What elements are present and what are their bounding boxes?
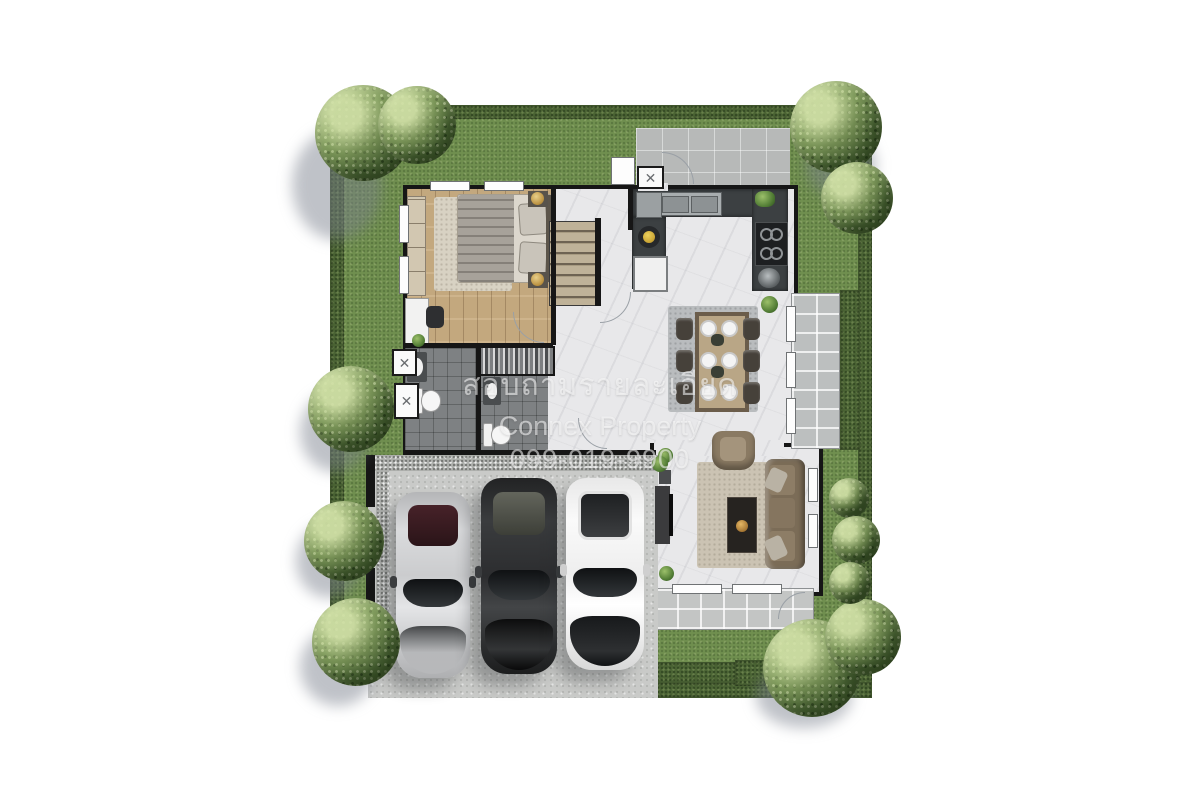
shrub-right-3 (829, 562, 871, 604)
ac-x-glyph: ✕ (401, 394, 413, 408)
dining-plant (761, 296, 778, 313)
black-car (481, 478, 557, 674)
pillow-top (518, 202, 548, 236)
white-car-roof-glass (578, 491, 631, 539)
black-car-windshield (488, 570, 550, 599)
window-dining-patio-1 (786, 306, 796, 342)
silver-car-hood (400, 626, 467, 674)
black-car-mirror-left (475, 566, 482, 578)
window-dining-patio-3 (786, 398, 796, 434)
sink-basin-right (691, 196, 718, 213)
burner (770, 228, 783, 241)
dining-chair (676, 318, 693, 340)
window-bedroom-left-2 (399, 256, 409, 294)
tv-screen (669, 494, 673, 536)
silver-car-windshield (403, 579, 464, 607)
bed (457, 194, 552, 283)
living-plant-bottom (659, 566, 674, 581)
kitchen-plant (755, 191, 775, 207)
window-living-right-2 (808, 514, 818, 548)
black-car-hood (485, 619, 553, 670)
fruit-bowl (638, 226, 660, 248)
window-bedroom-top-2 (484, 181, 524, 191)
wardrobe (407, 196, 426, 296)
silver-car (396, 492, 470, 678)
tree-left-lower (304, 501, 384, 581)
sofa (765, 459, 805, 569)
watermark-line-phone: 099-019-9900 (420, 444, 780, 475)
wall-bedroom-hall (551, 185, 556, 345)
white-car-hood (570, 616, 640, 666)
black-car-body (481, 478, 557, 674)
burner (770, 247, 783, 260)
silver-car-body (396, 492, 470, 678)
sliding-door-terrace-1 (672, 584, 722, 594)
window-living-right-1 (808, 468, 818, 502)
window-bedroom-left-1 (399, 205, 409, 243)
entry-doormat (611, 157, 635, 185)
tree-left-middle (308, 366, 394, 452)
silver-car-mirror-right (469, 576, 476, 588)
dining-chair (743, 318, 760, 340)
tree-right-upper (821, 162, 893, 234)
watermark-line-brand: Connex Property (420, 411, 780, 442)
white-car-body (566, 478, 644, 670)
tree-bottom-right-small (825, 599, 901, 675)
shrub-right-2 (832, 516, 880, 564)
floor-plan-rendering: ✕ ✕ ✕ สอบถามรายละเอียด Connex Property 0… (0, 0, 1200, 800)
prep-sink-round (758, 268, 780, 288)
lamp-top (531, 192, 544, 205)
tree-bottom-left (312, 598, 400, 686)
lamp-bottom (531, 273, 544, 286)
side-patio (791, 293, 840, 449)
sofa-cushion (769, 498, 795, 528)
tree-top-right (790, 81, 882, 173)
coffee-table (727, 497, 757, 553)
white-car-windshield (573, 568, 637, 597)
garage-wall-left-upper (366, 455, 375, 507)
ac-x-glyph: ✕ (399, 356, 411, 370)
watermark: สอบถามรายละเอียด Connex Property 099-019… (420, 362, 780, 475)
white-car-mirror-right (643, 564, 650, 576)
table-centerpiece (711, 334, 724, 346)
hedge-patio-side (840, 290, 860, 450)
hedge-row-bottom (656, 662, 736, 684)
pillow-bottom (518, 241, 548, 275)
fruit (643, 231, 655, 243)
stove (755, 222, 788, 266)
ac-unit-left-1: ✕ (392, 349, 417, 376)
sink-basin-left (662, 196, 689, 213)
ac-unit-entry: ✕ (637, 166, 664, 189)
wall-kitchen-hall (628, 185, 633, 230)
sliding-door-terrace-2 (732, 584, 782, 594)
desk-chair (426, 306, 444, 328)
white-car-mirror-left (560, 564, 567, 576)
kitchen-appliance (636, 192, 662, 218)
plate (721, 320, 738, 337)
tv-console (655, 486, 670, 544)
window-dining-patio-2 (786, 352, 796, 388)
shrub-right-1 (829, 478, 869, 518)
white-car (566, 478, 644, 670)
coffee-table-decor (736, 520, 748, 532)
watermark-line-thai: สอบถามรายละเอียด (420, 362, 780, 409)
staircase (549, 221, 597, 306)
refrigerator (633, 256, 668, 292)
ac-x-glyph: ✕ (645, 171, 657, 185)
ac-unit-left-2: ✕ (394, 383, 419, 419)
black-car-sunroof (493, 492, 545, 535)
bath-corner-plant (412, 334, 425, 347)
kitchen-sink (658, 192, 722, 216)
window-bedroom-top-1 (430, 181, 470, 191)
silver-car-mirror-left (390, 576, 397, 588)
bed-blanket (458, 195, 514, 282)
tree-top-left-small (378, 86, 456, 164)
silver-car-sunroof (408, 505, 458, 546)
